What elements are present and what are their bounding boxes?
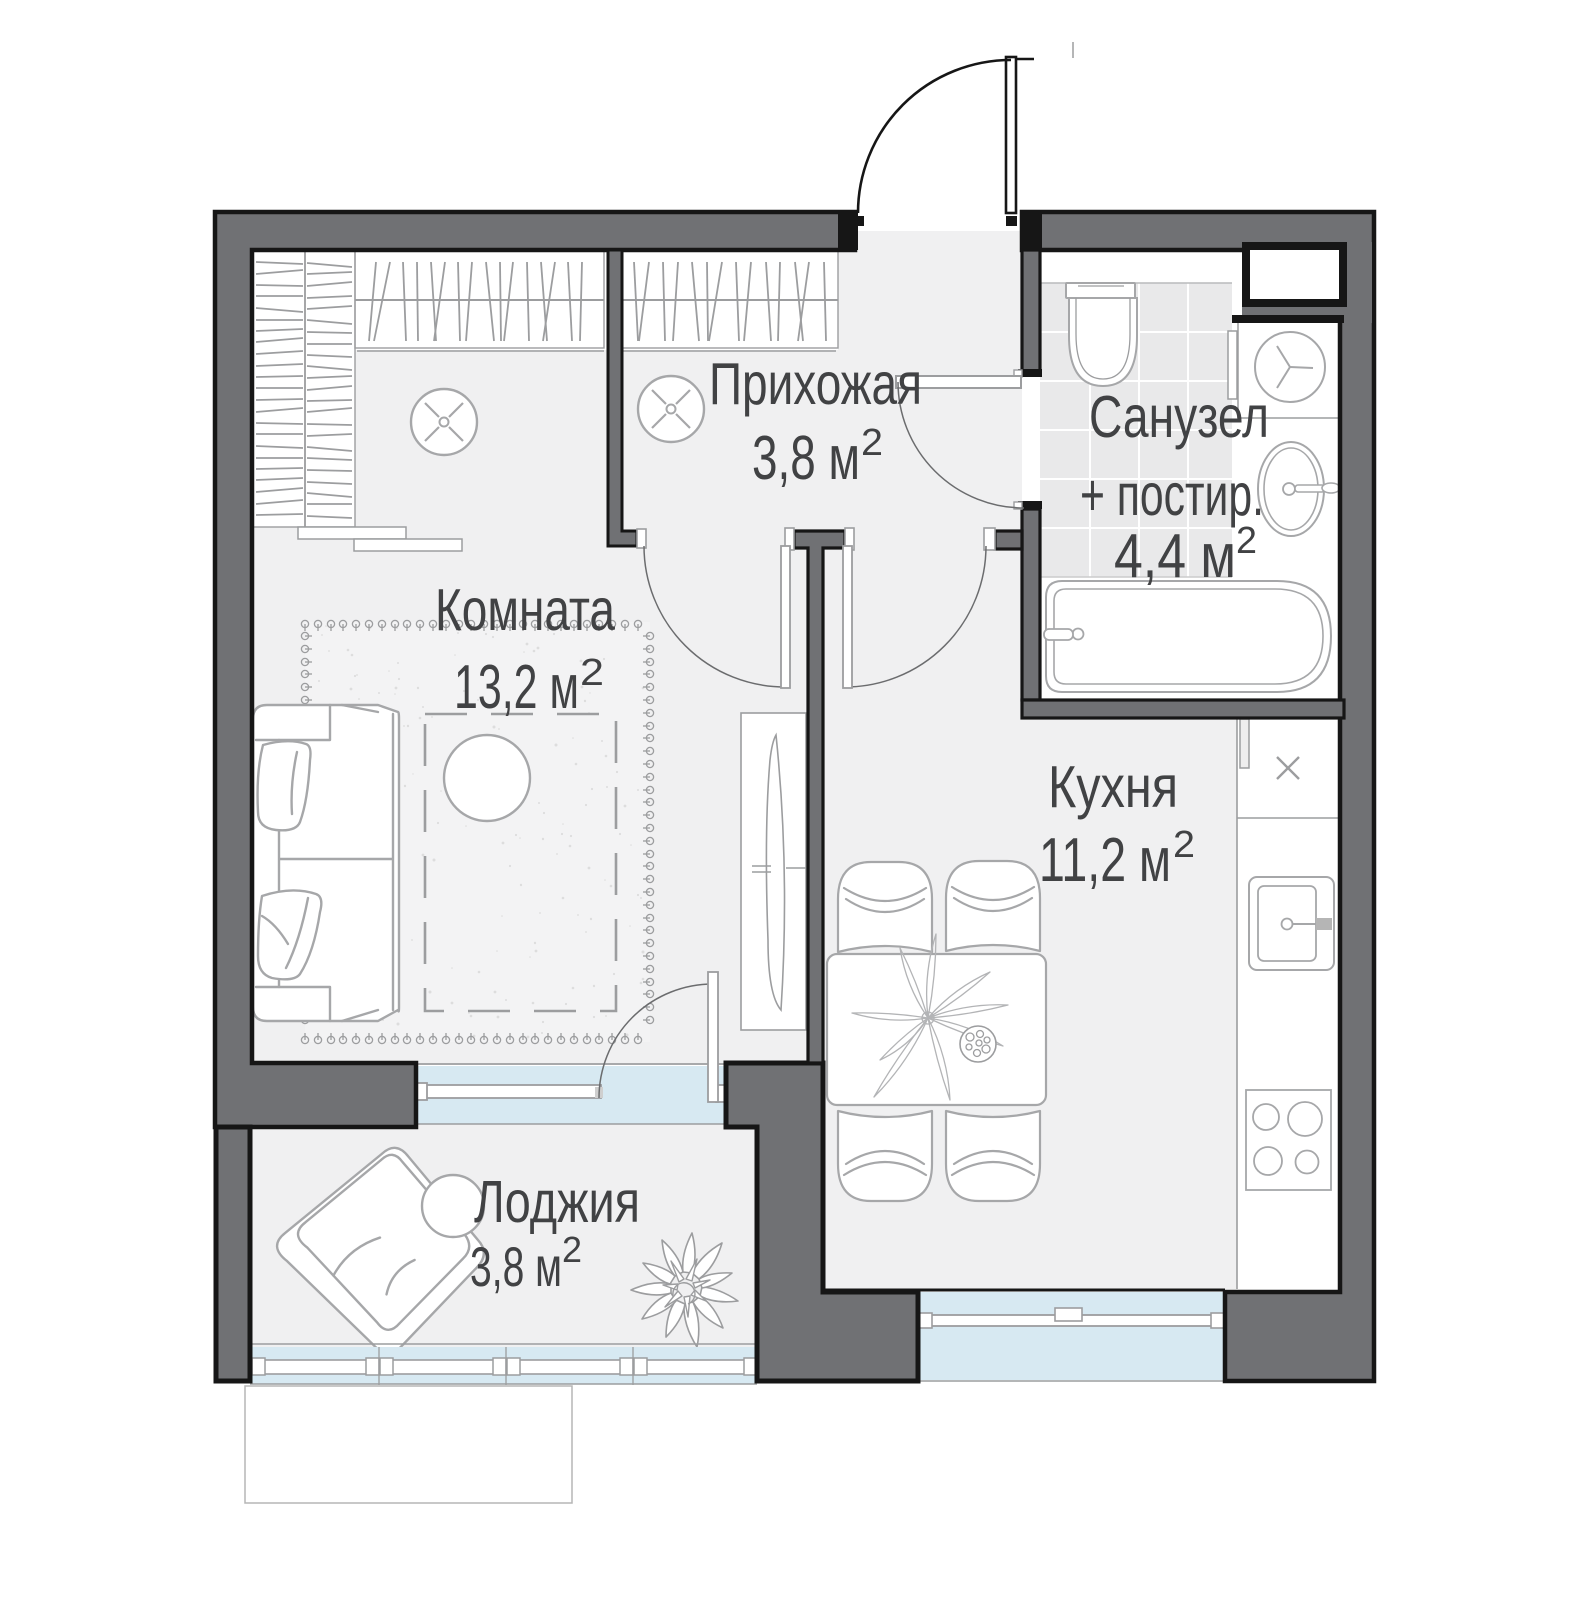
svg-text:Лоджия: Лоджия [474,1169,640,1235]
svg-text:Кухня: Кухня [1048,754,1178,820]
svg-text:2: 2 [580,652,604,694]
svg-text:2: 2 [562,1229,582,1270]
svg-text:+ постир.: + постир. [1080,462,1264,528]
svg-text:2: 2 [1173,824,1195,866]
svg-text:2: 2 [861,422,883,464]
svg-text:13,2 м: 13,2 м [454,653,579,722]
svg-text:2: 2 [1236,520,1257,562]
svg-text:11,2 м: 11,2 м [1039,826,1171,895]
svg-text:Санузел: Санузел [1089,384,1269,450]
svg-text:3,8 м: 3,8 м [752,424,860,493]
svg-text:Комната: Комната [435,577,615,643]
svg-text:3,8 м: 3,8 м [470,1235,562,1298]
svg-text:4,4 м: 4,4 м [1114,522,1236,591]
svg-text:Прихожая: Прихожая [709,351,922,417]
